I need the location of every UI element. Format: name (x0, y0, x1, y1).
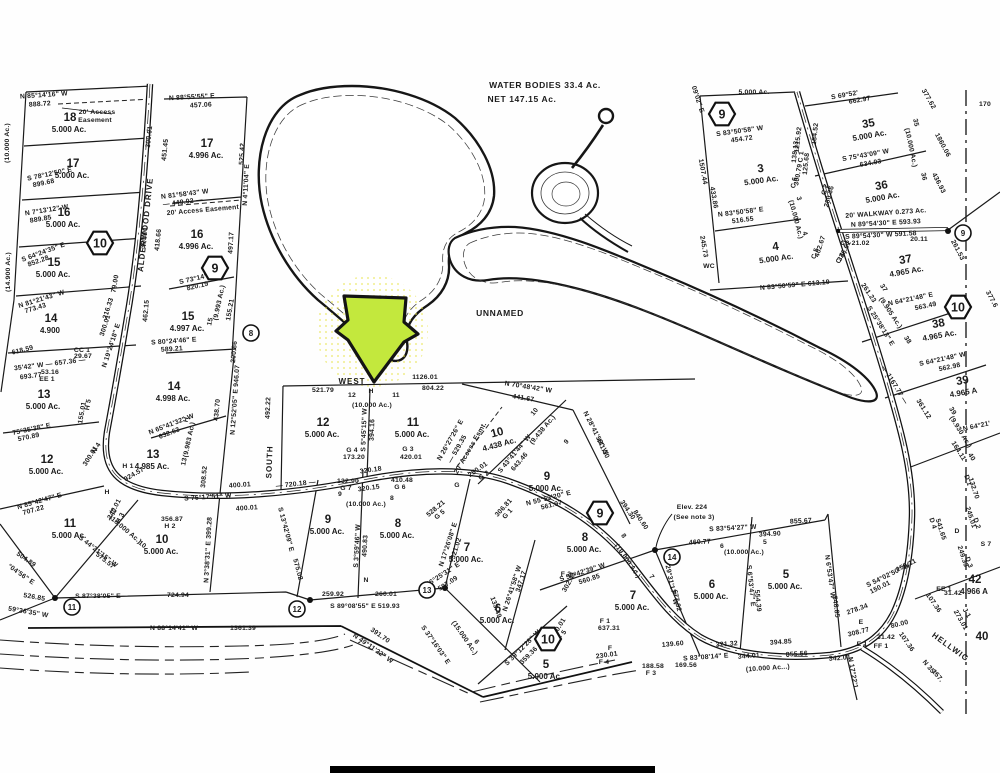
map-label: 490.83 (361, 535, 369, 557)
lot-number: 15 (48, 257, 61, 269)
map-label: 12 (348, 392, 356, 399)
map-label: 492.22 (265, 397, 273, 419)
lot-acreage: 5.000 Ac. (768, 582, 802, 591)
map-label: 31.42 (877, 634, 895, 641)
lot-acreage: 5.000 Ac. (480, 616, 514, 625)
lot-number: 18 (64, 112, 77, 124)
map-label: 260.01 (375, 591, 397, 598)
map-label: (10.000 Ac.) (724, 549, 764, 556)
lot-acreage: 5.000 Ac. (615, 603, 649, 612)
curve-number: 14 (668, 553, 677, 562)
lot-acreage: 4.997 Ac. (170, 324, 204, 333)
section-marker-hexagon: 10 (535, 628, 561, 651)
lot-number: 8 (582, 532, 589, 544)
curve-node-marker: 12 (289, 601, 305, 617)
curve-node-marker: 13 (419, 582, 435, 598)
section-marker-hexagon: 9 (587, 502, 613, 525)
section-number: 9 (597, 507, 604, 521)
lot-number: 37 (898, 253, 913, 267)
map-label: G 3 (402, 446, 414, 453)
curve-number: 9 (961, 229, 966, 238)
lot-number: 14 (168, 381, 181, 393)
boundary-word-south: SOUTH (264, 445, 274, 478)
lot-number: 9 (325, 514, 331, 526)
map-label: S 5°45'15" W (359, 408, 369, 452)
map-label: 356.87 (161, 516, 183, 523)
map-label: 11 (392, 392, 400, 399)
lot-number: 42 (969, 574, 982, 586)
map-label: F 1 (600, 618, 610, 625)
map-label: 1126.01 (412, 374, 438, 381)
map-label: 53.16 (41, 369, 59, 376)
map-label: G 6 (394, 484, 406, 491)
map-label: 724.94 (167, 592, 189, 599)
map-label: 20' Access (79, 109, 116, 116)
net-acreage-label: NET 147.15 Ac. (487, 94, 556, 104)
lot-number: 6 (495, 603, 501, 615)
lot-acreage: 5.000 Ac. (29, 467, 63, 476)
lot-number: 36 (874, 179, 889, 193)
map-label: S 7 (981, 541, 992, 548)
section-marker-hexagon: 9 (709, 103, 735, 126)
curve-number: 12 (293, 605, 302, 614)
map-label: 173.20 (343, 454, 365, 461)
section-marker-hexagon: 10 (87, 232, 113, 255)
water-bodies-label: WATER BODIES 33.4 Ac. (489, 80, 601, 90)
lot-acreage: 5.000 Ac. (36, 270, 70, 279)
lot-acreage: 5.000 Ac. (395, 430, 429, 439)
map-label: 29.67 (74, 353, 92, 360)
lot-acreage: 5.000 Ac. (567, 545, 601, 554)
lot-number: 6 (709, 579, 715, 591)
section-number: 10 (951, 301, 965, 315)
map-label: (10.000 Ac.) (352, 402, 392, 409)
map-label: N (363, 577, 368, 584)
map-label: S 89°08'55" E 519.93 (330, 602, 400, 610)
lot-number: 17 (67, 158, 80, 170)
lot-acreage: 5.000 Ac. (380, 531, 414, 540)
map-label: E 1 (857, 641, 868, 648)
section-number: 9 (719, 108, 726, 122)
map-label: F 3 (646, 670, 656, 677)
lot-acreage: 4.900 (40, 326, 61, 335)
curve-number: 13 (423, 586, 432, 595)
map-label: 521.79 (312, 387, 334, 394)
lot-acreage: 5.000 Ac. (55, 171, 89, 180)
section-marker-hexagon: 9 (202, 257, 228, 280)
plat-map-page: N 85°14'16" W888.72(10.000 Ac.)20' Acces… (0, 0, 1000, 773)
lot-number: 11 (64, 518, 77, 530)
lot-number: 7 (630, 590, 636, 602)
lot-number: 15 (182, 311, 195, 323)
lot-number: 16 (58, 207, 71, 219)
lot-number: 8 (395, 518, 402, 530)
map-label: (10.000 Ac.) (4, 123, 11, 163)
elevation-note: Elev. 224 (677, 504, 707, 511)
section-number: 10 (93, 237, 107, 251)
lot-number: 9 (544, 471, 550, 483)
lot-number: 16 (191, 229, 204, 241)
lot-number: 40 (976, 631, 989, 643)
lot-parcel-label: 40 (976, 631, 989, 643)
lot-number: 13 (147, 449, 160, 461)
section-marker-hexagon: 10 (945, 296, 971, 319)
map-label: D (954, 528, 959, 535)
lot-acreage: 5.000 Ac. (310, 527, 344, 536)
lot-acreage: 5.000 Ac. (52, 125, 86, 134)
curve-node-marker: 9 (955, 225, 971, 241)
map-label: 637.31 (598, 625, 620, 632)
map-label: 1361.39 (230, 625, 256, 632)
map-label: 420.01 (400, 454, 422, 461)
map-label: (14.900 Ac.) (5, 252, 12, 292)
lot-acreage: 5.000 Ac. (528, 672, 562, 681)
boundary-word-west: WEST (338, 377, 365, 386)
map-label: 188.58 (642, 663, 664, 670)
lot-number: 11 (407, 417, 420, 429)
curve-number: 8 (249, 329, 254, 338)
lot-number: 39 (955, 374, 970, 388)
lot-acreage: 5.000 Ac. (26, 402, 60, 411)
edge-label: 170 (979, 101, 991, 108)
lot-number: 14 (45, 313, 58, 325)
map-label: 394.16 (369, 419, 377, 441)
spring-circle (599, 109, 613, 123)
lot-acreage: 4.996 Ac. (189, 151, 223, 160)
map-label: WC (703, 263, 715, 270)
map-label: 9 (338, 491, 342, 498)
map-label: G (454, 482, 460, 489)
map-label: 410.48 (391, 477, 413, 484)
map-label: FF 1 (874, 643, 889, 650)
lot-acreage: 5.000 Ac. (529, 484, 563, 493)
lot-acreage: 5.000 Ac. (449, 555, 483, 564)
curve-number: 11 (68, 603, 77, 612)
lot-number: 12 (317, 417, 330, 429)
section-number: 9 (212, 262, 219, 276)
lot-number: 5 (543, 659, 550, 671)
map-label: 460.77 (689, 538, 711, 546)
lot-acreage: 5.000 Ac. (305, 430, 339, 439)
map-label: 855.67 (790, 517, 812, 525)
section-number: 10 (541, 633, 555, 647)
map-label: 132.90 (337, 478, 359, 485)
map-label: N 88°14'41" W (150, 624, 198, 632)
map-label: S 87°38'05" E (75, 592, 121, 600)
lot-acreage: 5.000 Ac. (46, 220, 80, 229)
lot-number: 17 (201, 138, 214, 150)
map-label: Easement (78, 117, 112, 124)
lake-name-label: UNNAMED (476, 308, 524, 318)
map-label: 457.06 (190, 101, 212, 109)
map-label: G 4 (346, 447, 358, 454)
lot-number: 10 (156, 534, 169, 546)
lot-acreage: 5.000 Ac. (144, 547, 178, 556)
curve-node-marker: 14 (664, 549, 680, 565)
map-label: H (368, 388, 373, 395)
map-label: H 2 (164, 523, 175, 530)
lot-acreage: 4.966 A (960, 587, 988, 596)
map-label: F 4 (599, 659, 609, 666)
lot-acreage: 5.000 Ac. (52, 531, 86, 540)
map-label: 525.42 (238, 143, 246, 165)
lot-number: 12 (41, 454, 54, 466)
map-label: 169.56 (675, 662, 697, 669)
lot-acreage: 4.985 Ac. (135, 462, 169, 471)
map-label: 259.92 (322, 591, 344, 598)
lot-number: 13 (38, 389, 51, 401)
map-label: 804.22 (422, 385, 444, 392)
lot-number: 7 (464, 542, 470, 554)
scan-edge-bar (330, 766, 655, 773)
map-label: 5 (763, 539, 767, 546)
map-label: E (859, 619, 864, 626)
map-label: 8 (390, 495, 394, 502)
curve-node-marker: 8 (243, 325, 259, 341)
plat-map-canvas[interactable]: N 85°14'16" W888.72(10.000 Ac.)20' Acces… (0, 0, 1000, 773)
map-label: (10.000 Ac.) (346, 501, 386, 508)
map-label: 497.17 (227, 232, 235, 254)
map-label: H (104, 489, 109, 496)
map-label: H 1 (122, 463, 133, 470)
map-label: 394.90 (759, 530, 781, 538)
lot-acreage: 4.996 Ac. (179, 242, 213, 251)
elevation-note-ref: (See note 3) (674, 514, 715, 521)
map-label: 20.11 (910, 236, 928, 243)
map-label: 5.000 Ac. (738, 89, 769, 96)
lot-number: 5 (783, 569, 790, 581)
lot-acreage: 4.998 Ac. (156, 394, 190, 403)
lot-acreage: 5.000 Ac. (694, 592, 728, 601)
curve-node-marker: 11 (64, 599, 80, 615)
map-label: EE 1 (39, 376, 55, 383)
